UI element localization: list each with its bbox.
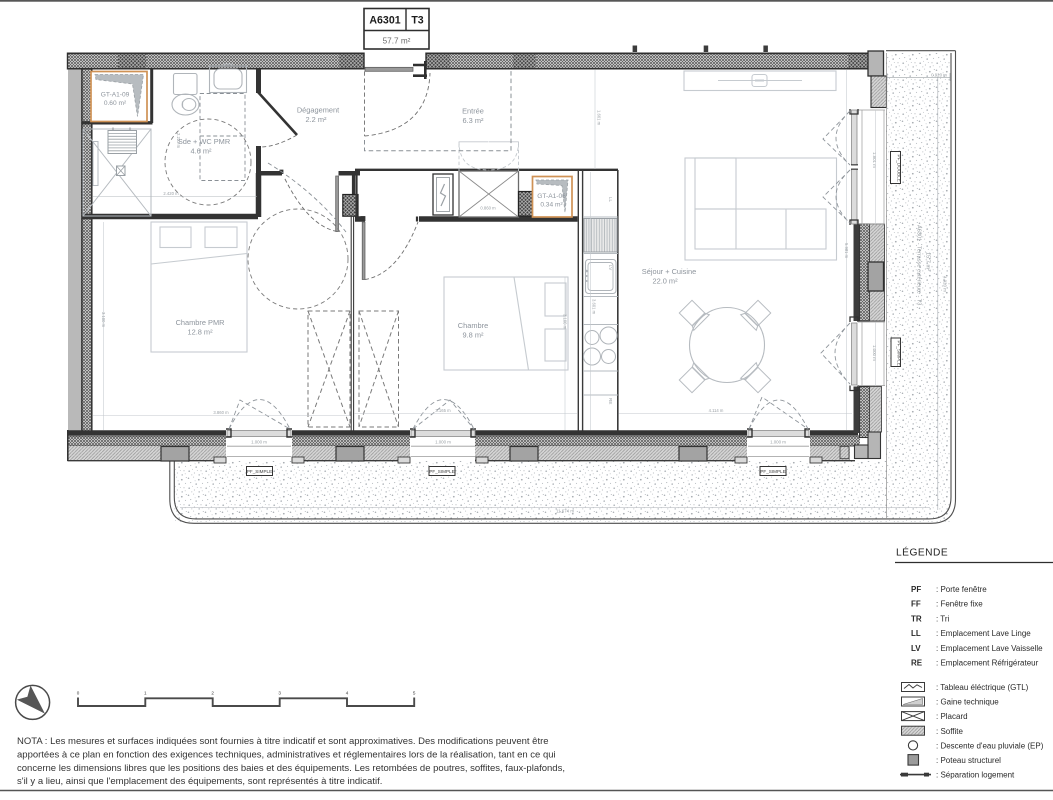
svg-text:1.000 m: 1.000 m [872,345,877,361]
svg-text:GT-A1-09: GT-A1-09 [101,92,130,99]
svg-text:Chambre PMR: Chambre PMR [176,318,225,327]
svg-text:: Porte fenêtre: : Porte fenêtre [936,585,987,594]
svg-text:4: 4 [346,691,349,696]
svg-text:15.7 m²: 15.7 m² [925,252,931,271]
svg-text:5.981 m: 5.981 m [844,243,849,259]
svg-text:concerne les dimensions libres: concerne les dimensions libres que les p… [17,763,565,774]
svg-text:3: 3 [278,691,281,696]
svg-text:: Emplacement Lave Linge: : Emplacement Lave Linge [936,629,1031,638]
svg-text:PF_SIMPLE: PF_SIMPLE [247,469,272,474]
svg-text:2.420 m: 2.420 m [163,191,179,196]
svg-text:PF_SIMPLE: PF_SIMPLE [760,469,785,474]
svg-text:0: 0 [77,691,80,696]
svg-text:Chambre: Chambre [458,321,488,330]
svg-text:6.3 m²: 6.3 m² [463,116,484,125]
svg-text:LL: LL [608,197,613,203]
svg-text:9.8 m²: 9.8 m² [463,331,484,340]
svg-text:0.860 m: 0.860 m [480,206,496,211]
svg-text:22.0 m²: 22.0 m² [652,277,678,286]
svg-text:1: 1 [144,691,147,696]
svg-text:3.165 m: 3.165 m [435,408,451,413]
svg-text:GT-A1-06: GT-A1-06 [537,193,566,200]
svg-text:NOTA : Les mesures et surfaces: NOTA : Les mesures et surfaces indiquées… [17,736,549,747]
svg-text:4.920 m: 4.920 m [943,276,948,292]
svg-text:PF_SIMPLE: PF_SIMPLE [429,469,454,474]
svg-text:12.8 m²: 12.8 m² [187,328,213,337]
svg-text:: Emplacement Réfrigérateur: : Emplacement Réfrigérateur [936,659,1039,668]
svg-text:: Soffite: : Soffite [936,727,964,736]
svg-text:0.34 m²: 0.34 m² [540,202,563,209]
svg-text:LV: LV [911,644,921,653]
svg-text:3.100 m: 3.100 m [101,312,106,328]
svg-text:: Poteau structurel: : Poteau structurel [936,756,1001,765]
svg-text:PF_SIMPLE: PF_SIMPLE [896,341,901,366]
svg-text:4.6 m²: 4.6 m² [191,147,212,156]
svg-text:5: 5 [413,691,416,696]
svg-text:PF: PF [911,585,921,594]
svg-text:3.601 m: 3.601 m [592,299,597,315]
svg-text:2.2 m²: 2.2 m² [306,115,327,124]
svg-text:: Descente d'eau pluviale (EP: : Descente d'eau pluviale (EP) [936,741,1044,750]
svg-text:Entrée: Entrée [462,107,484,116]
svg-text:LL: LL [911,629,921,638]
svg-text:Dégagement: Dégagement [297,106,339,115]
svg-text:1.801 m: 1.801 m [872,152,877,168]
svg-text:TR: TR [911,614,922,623]
svg-text:T3: T3 [411,15,423,27]
svg-text:PF_DOUBLE: PF_DOUBLE [896,155,901,182]
svg-text:RE: RE [608,398,613,404]
svg-text:LÉGENDE: LÉGENDE [896,546,948,559]
svg-text:2: 2 [211,691,214,696]
svg-text:: Placard: : Placard [936,712,968,721]
svg-text:1.000 m: 1.000 m [770,440,786,445]
svg-text:11.674 m: 11.674 m [556,509,574,514]
svg-text:: Gaine technique: : Gaine technique [936,698,999,707]
svg-text:s'il y a lieu, ainsi que l'emp: s'il y a lieu, ainsi que l'emplacement d… [17,776,382,787]
svg-text:: Emplacement Lave Vaisselle: : Emplacement Lave Vaisselle [936,644,1043,653]
svg-text:apportées à ce plan en fonctio: apportées à ce plan en fonction des exig… [17,749,556,760]
svg-text:: Séparation logement: : Séparation logement [936,771,1015,780]
svg-text:Séjour + Cuisine: Séjour + Cuisine [642,267,696,276]
svg-text:: Tableau éléctrique (GTL): : Tableau éléctrique (GTL) [936,683,1029,692]
svg-text:A6301 - Terrasse extérieure -: A6301 - Terrasse extérieure - T3 [916,225,922,305]
svg-text:A6301: A6301 [369,15,400,27]
svg-text:57.7 m²: 57.7 m² [383,37,411,46]
svg-text:3.860 m: 3.860 m [213,410,229,415]
svg-text:4.114 m: 4.114 m [709,408,724,413]
svg-text:: Tri: : Tri [936,614,950,623]
svg-text:1.661 m: 1.661 m [597,110,602,126]
svg-text:1.000 m: 1.000 m [435,440,451,445]
svg-text:Sde + WC PMR: Sde + WC PMR [178,137,230,146]
svg-text:FF: FF [911,600,921,609]
svg-text:RE: RE [911,659,923,668]
svg-text:0.60 m²: 0.60 m² [104,100,127,107]
svg-text:0.920 m: 0.920 m [931,72,947,77]
svg-text:1.000 m: 1.000 m [251,440,267,445]
svg-text:3.100 m: 3.100 m [563,314,568,330]
svg-text:: Fenêtre fixe: : Fenêtre fixe [936,600,983,609]
